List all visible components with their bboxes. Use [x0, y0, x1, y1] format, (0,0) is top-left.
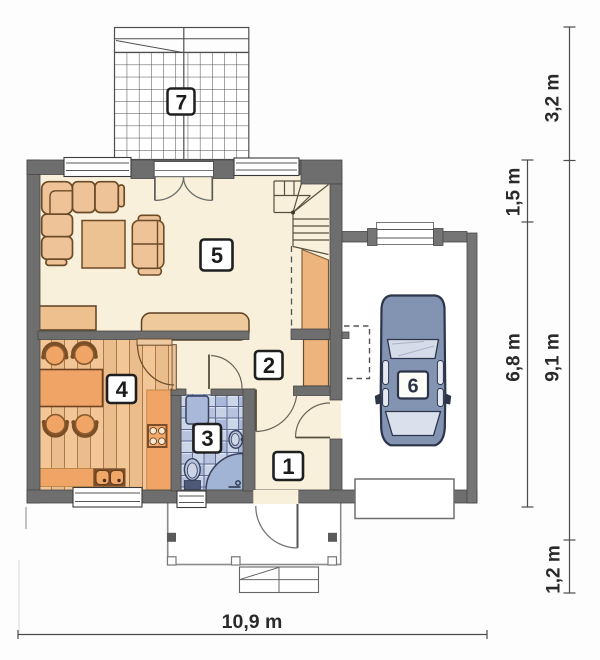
- svg-text:10,9 m: 10,9 m: [222, 611, 283, 633]
- svg-text:3: 3: [201, 426, 213, 451]
- svg-text:1: 1: [282, 454, 294, 479]
- svg-text:9,1 m: 9,1 m: [543, 333, 564, 382]
- svg-text:2: 2: [263, 353, 275, 378]
- svg-text:1,5 m: 1,5 m: [504, 168, 525, 217]
- svg-text:6: 6: [407, 376, 418, 398]
- svg-text:3,2 m: 3,2 m: [543, 74, 564, 123]
- svg-text:5: 5: [211, 243, 223, 268]
- svg-text:1,2 m: 1,2 m: [544, 545, 565, 594]
- svg-text:7: 7: [175, 91, 187, 114]
- svg-text:4: 4: [116, 377, 129, 402]
- svg-text:6,8 m: 6,8 m: [504, 333, 525, 382]
